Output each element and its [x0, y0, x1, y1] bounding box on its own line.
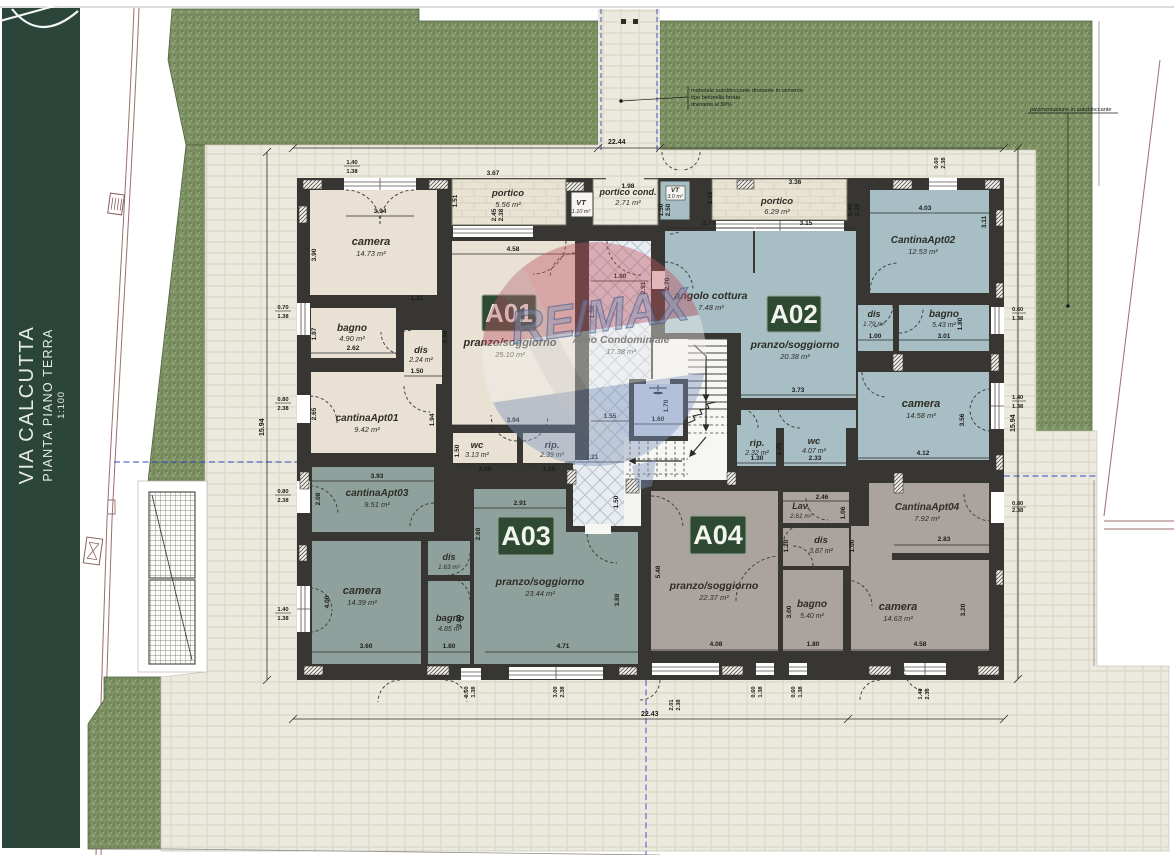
svg-text:2.91: 2.91 [514, 500, 527, 507]
svg-text:4.58: 4.58 [507, 246, 520, 253]
svg-text:2.65: 2.65 [311, 407, 318, 420]
svg-text:1.38: 1.38 [798, 686, 804, 698]
svg-text:3.20: 3.20 [960, 603, 967, 616]
svg-text:3.73: 3.73 [792, 387, 805, 394]
svg-text:VT: VT [671, 187, 680, 194]
svg-text:5.40 m²: 5.40 m² [800, 613, 824, 620]
svg-text:3.15: 3.15 [800, 220, 813, 227]
svg-text:3.88: 3.88 [614, 593, 621, 606]
svg-text:camera: camera [343, 585, 382, 597]
svg-text:1.50: 1.50 [454, 444, 461, 457]
svg-text:3.36: 3.36 [789, 179, 802, 186]
svg-text:bagno: bagno [337, 323, 367, 334]
svg-text:1.40: 1.40 [918, 688, 924, 699]
svg-text:PIANTA PIANO TERRA: PIANTA PIANO TERRA [41, 328, 55, 481]
svg-text:1.79 m²: 1.79 m² [863, 321, 886, 328]
svg-text:1.80: 1.80 [443, 643, 456, 650]
svg-text:dis: dis [414, 345, 428, 356]
svg-text:14.39 m²: 14.39 m² [347, 598, 377, 607]
svg-text:pavimentazione in autobloccant: pavimentazione in autobloccante [1030, 107, 1111, 113]
svg-text:2.46: 2.46 [816, 494, 829, 501]
svg-text:materiale autobloccante drenan: materiale autobloccante drenante in ceme… [691, 88, 803, 94]
svg-text:2.61 m²: 2.61 m² [789, 513, 813, 520]
svg-text:bagno: bagno [797, 599, 827, 610]
svg-text:0.80: 0.80 [1012, 501, 1023, 507]
svg-text:2.38: 2.38 [925, 688, 931, 700]
svg-text:drenante al 50%: drenante al 50% [691, 102, 732, 108]
svg-text:2.38: 2.38 [676, 699, 682, 711]
svg-text:1.21: 1.21 [411, 295, 424, 302]
svg-text:1.55: 1.55 [543, 466, 556, 473]
svg-text:portico: portico [760, 196, 793, 207]
svg-text:4.12: 4.12 [917, 450, 930, 457]
svg-text:4.03: 4.03 [919, 205, 932, 212]
svg-text:22.43: 22.43 [641, 711, 659, 718]
svg-text:1.87: 1.87 [311, 327, 318, 340]
svg-text:23.44 m²: 23.44 m² [524, 589, 555, 598]
svg-text:portico: portico [491, 188, 524, 199]
svg-text:1.38: 1.38 [1012, 316, 1024, 322]
svg-text:cantinaApt03: cantinaApt03 [346, 488, 409, 499]
svg-text:2.38: 2.38 [941, 157, 947, 169]
svg-text:15.94: 15.94 [259, 418, 266, 436]
svg-text:CantinaApt02: CantinaApt02 [891, 235, 956, 246]
svg-text:1.94: 1.94 [429, 413, 436, 426]
svg-text:1.51: 1.51 [452, 194, 459, 207]
svg-text:A04: A04 [693, 520, 743, 550]
svg-text:2.77: 2.77 [703, 220, 716, 227]
svg-text:1.80: 1.80 [807, 641, 820, 648]
svg-text:12.53 m²: 12.53 m² [908, 247, 938, 256]
svg-text:20.38 m²: 20.38 m² [779, 352, 810, 361]
svg-text:0.60: 0.60 [934, 157, 940, 168]
svg-text:0.80: 0.80 [277, 397, 288, 403]
svg-text:2.09: 2.09 [479, 466, 492, 473]
svg-text:VIA CALCUTTA: VIA CALCUTTA [16, 326, 38, 485]
svg-text:dis: dis [814, 535, 828, 546]
svg-text:3.11: 3.11 [981, 215, 988, 228]
svg-text:2.38: 2.38 [1012, 508, 1024, 514]
svg-text:3.00: 3.00 [786, 605, 793, 618]
svg-text:1.40: 1.40 [277, 607, 288, 613]
svg-text:2.83: 2.83 [938, 536, 951, 543]
svg-text:2.01: 2.01 [669, 699, 675, 711]
svg-text:5.56 m²: 5.56 m² [495, 200, 521, 209]
svg-text:4.00: 4.00 [324, 595, 331, 608]
svg-text:0.80: 0.80 [277, 489, 288, 495]
svg-text:0.70: 0.70 [277, 305, 288, 311]
svg-text:1.63 m²: 1.63 m² [438, 564, 461, 571]
svg-text:1.38: 1.38 [758, 686, 764, 698]
svg-text:1.80: 1.80 [957, 317, 964, 330]
svg-text:2.33: 2.33 [809, 455, 822, 462]
svg-text:1.00: 1.00 [869, 333, 882, 340]
svg-text:2.62: 2.62 [347, 345, 360, 352]
svg-text:A02: A02 [770, 299, 818, 329]
svg-text:2.24 m²: 2.24 m² [408, 357, 433, 364]
svg-text:1.38: 1.38 [277, 314, 289, 320]
svg-text:3.90: 3.90 [311, 248, 318, 261]
svg-text:1.40: 1.40 [346, 160, 357, 166]
svg-text:2.38: 2.38 [854, 203, 861, 216]
svg-text:4.58: 4.58 [914, 641, 927, 648]
svg-text:2.38: 2.38 [277, 498, 289, 504]
svg-text:dis: dis [867, 309, 880, 319]
svg-text:3.13 m²: 3.13 m² [465, 452, 489, 459]
svg-text:3.94: 3.94 [374, 208, 387, 215]
svg-text:1.75: 1.75 [776, 442, 783, 455]
svg-text:22.37 m²: 22.37 m² [698, 593, 729, 602]
svg-text:2.50: 2.50 [665, 203, 672, 216]
svg-text:2.69: 2.69 [456, 614, 463, 627]
svg-text:1.50: 1.50 [613, 495, 620, 508]
svg-text:0.60: 0.60 [464, 686, 470, 697]
svg-text:3.60: 3.60 [360, 643, 373, 650]
svg-text:2.45: 2.45 [491, 208, 498, 221]
svg-text:5.48: 5.48 [655, 565, 662, 578]
svg-text:3.0 m²: 3.0 m² [667, 194, 683, 200]
svg-text:Lav.: Lav. [792, 501, 810, 511]
svg-text:1:100: 1:100 [56, 391, 67, 419]
svg-text:4.90 m²: 4.90 m² [339, 334, 365, 343]
svg-text:1.32: 1.32 [707, 191, 714, 204]
svg-text:1.50: 1.50 [658, 203, 665, 216]
svg-text:0.60: 0.60 [751, 686, 757, 697]
svg-text:14.73 m²: 14.73 m² [356, 249, 386, 258]
svg-text:0.60: 0.60 [1012, 307, 1023, 313]
svg-text:rip.: rip. [750, 438, 765, 449]
svg-text:4.71: 4.71 [557, 643, 570, 650]
svg-text:1.98: 1.98 [622, 183, 635, 190]
svg-text:1.38: 1.38 [346, 169, 358, 175]
svg-text:9.42 m²: 9.42 m² [354, 425, 380, 434]
svg-text:1.30: 1.30 [751, 455, 764, 462]
svg-text:tipo betonella forata: tipo betonella forata [691, 95, 741, 101]
svg-text:22.44: 22.44 [608, 139, 626, 146]
svg-text:0.60: 0.60 [791, 686, 797, 697]
svg-text:CantinaApt04: CantinaApt04 [895, 502, 960, 513]
svg-text:2.71 m²: 2.71 m² [614, 198, 641, 207]
svg-text:1.00: 1.00 [849, 539, 856, 552]
svg-text:dis: dis [442, 552, 455, 562]
svg-text:3.87 m²: 3.87 m² [809, 548, 833, 555]
svg-text:bagno: bagno [929, 309, 959, 320]
svg-text:camera: camera [352, 236, 391, 248]
svg-text:1.10 m²: 1.10 m² [572, 209, 591, 215]
svg-text:2.08: 2.08 [315, 492, 322, 505]
svg-text:14.63 m²: 14.63 m² [883, 614, 913, 623]
svg-text:camera: camera [902, 398, 941, 410]
svg-text:1.38: 1.38 [1012, 404, 1024, 410]
svg-text:9.51 m²: 9.51 m² [364, 500, 390, 509]
svg-text:6.29 m²: 6.29 m² [764, 207, 790, 216]
svg-text:4.07 m²: 4.07 m² [802, 448, 826, 455]
svg-text:2.38: 2.38 [560, 686, 566, 698]
svg-text:cantinaApt01: cantinaApt01 [336, 413, 399, 424]
svg-text:pranzo/soggiorno: pranzo/soggiorno [495, 576, 585, 588]
svg-text:3.67: 3.67 [487, 170, 500, 177]
svg-text:VT: VT [576, 198, 587, 207]
svg-text:pranzo/soggiorno: pranzo/soggiorno [669, 580, 759, 592]
svg-text:1.06: 1.06 [840, 506, 847, 519]
svg-text:2.38: 2.38 [277, 406, 289, 412]
svg-text:3.00: 3.00 [553, 686, 559, 697]
svg-text:wc: wc [471, 440, 484, 451]
svg-text:5.43 m²: 5.43 m² [932, 322, 956, 329]
svg-text:A03: A03 [501, 521, 551, 551]
svg-text:14.58 m²: 14.58 m² [906, 411, 936, 420]
svg-text:2.68: 2.68 [475, 527, 482, 540]
svg-text:3.56: 3.56 [959, 413, 966, 426]
svg-text:1.38: 1.38 [277, 616, 289, 622]
svg-text:1.20: 1.20 [783, 539, 790, 552]
svg-text:pranzo/soggiorno: pranzo/soggiorno [750, 339, 840, 351]
svg-text:1.38: 1.38 [471, 686, 477, 698]
svg-text:camera: camera [879, 601, 918, 613]
svg-text:7.92 m²: 7.92 m² [914, 514, 940, 523]
svg-text:wc: wc [808, 436, 821, 447]
svg-text:7.48 m²: 7.48 m² [698, 303, 724, 312]
svg-text:3.93: 3.93 [371, 473, 384, 480]
svg-text:2.45: 2.45 [847, 203, 854, 216]
svg-text:4.08: 4.08 [710, 641, 723, 648]
svg-text:15.94: 15.94 [1010, 414, 1017, 432]
svg-text:5.96: 5.96 [442, 330, 449, 343]
svg-text:1.50: 1.50 [411, 368, 424, 375]
svg-text:1.40: 1.40 [1012, 395, 1023, 401]
svg-text:3.01: 3.01 [938, 333, 951, 340]
svg-text:2.38: 2.38 [498, 208, 505, 221]
